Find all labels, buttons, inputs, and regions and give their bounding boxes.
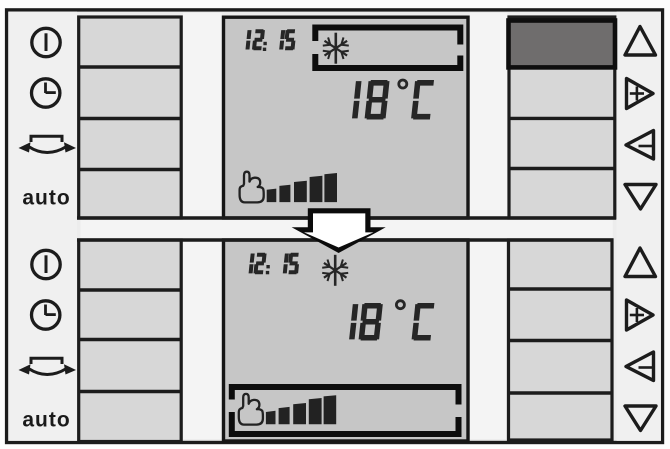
svg-text:auto: auto <box>22 187 70 210</box>
svg-text:auto: auto <box>22 409 70 432</box>
